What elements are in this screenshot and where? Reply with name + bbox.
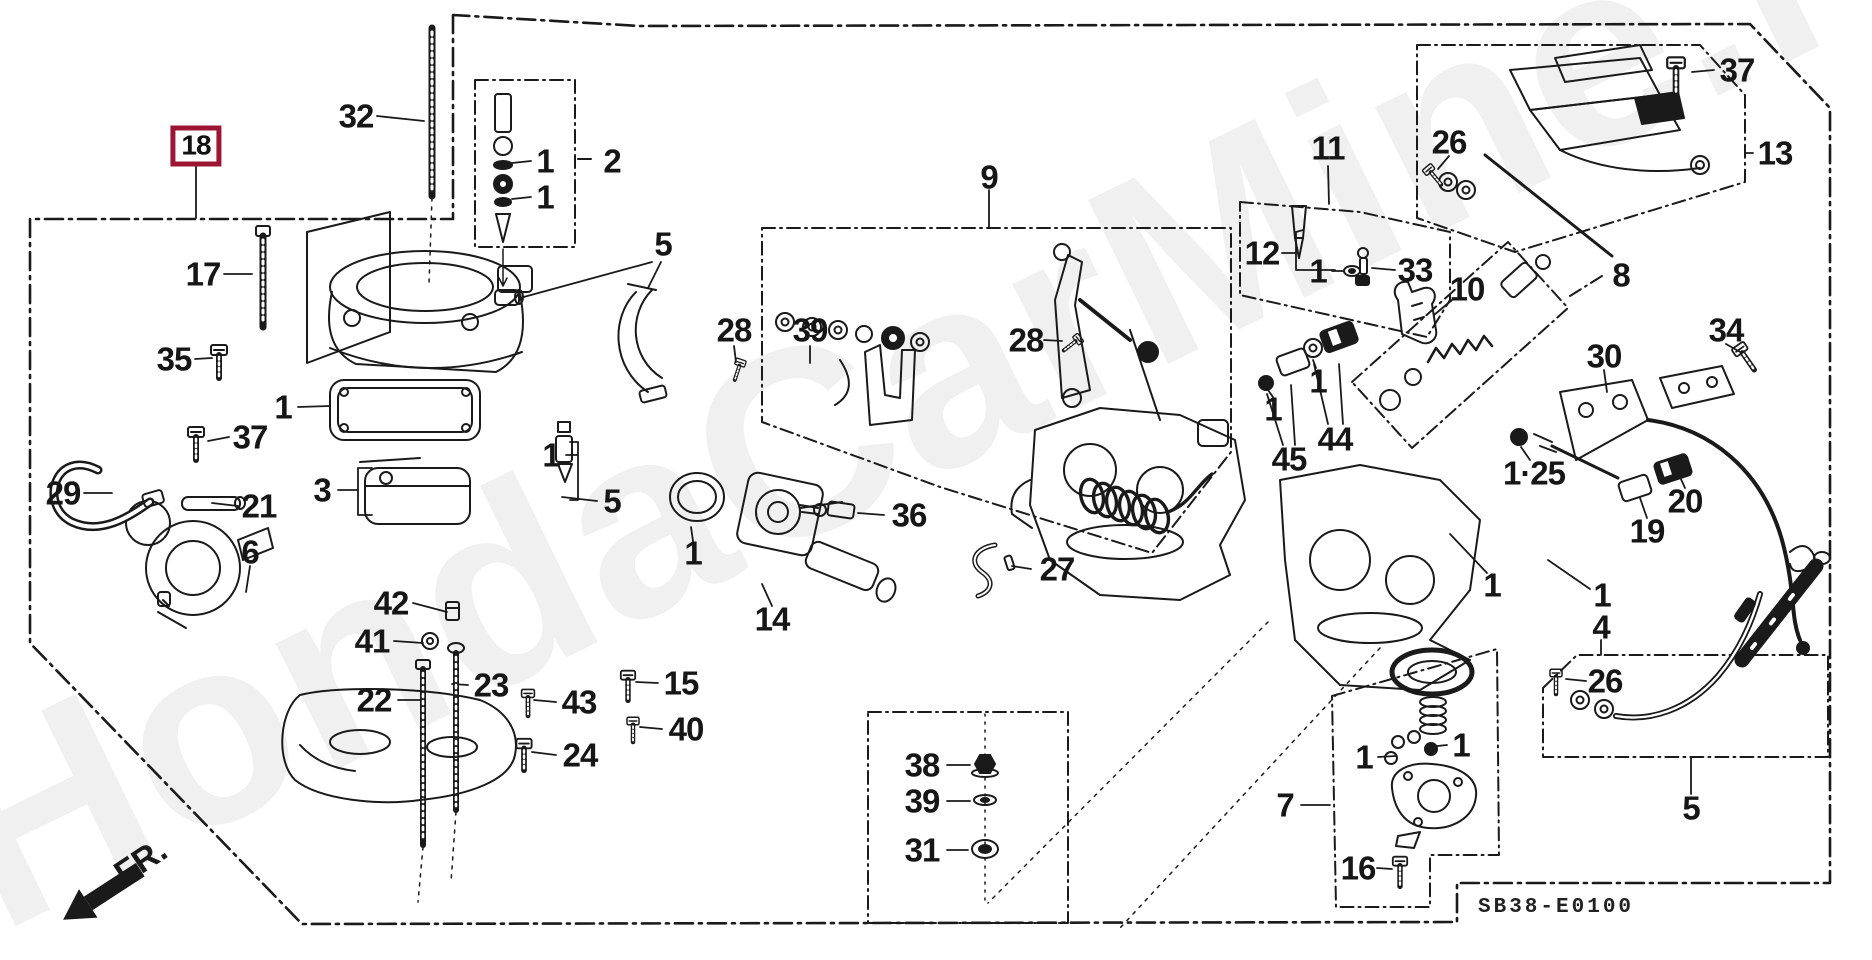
part-callout-39-59: 39 [905,785,940,818]
group-box-mount-38 [868,712,1068,923]
chamber-gasket-ring-5 [670,473,724,521]
part-callout-37-38: 37 [1720,54,1755,87]
part-callout-30-42: 30 [1587,340,1622,373]
part-callout-7-56: 7 [1276,789,1293,822]
nut-41-42 [422,602,459,649]
throttle-washers-and-lever-9 [776,244,1160,425]
part-callout-33-35: 33 [1398,254,1433,287]
part-callout-22-24: 22 [357,684,392,717]
part-callout-26-37: 26 [1432,126,1467,159]
jet-set-parts-2 [494,94,512,242]
part-callout-9-30: 9 [980,161,997,194]
part-callout-45-43: 45 [1272,443,1307,476]
part-callout-6-12: 6 [241,536,258,569]
solenoid-valve-14 [735,471,898,605]
part-callout-3-11: 3 [313,474,330,507]
part-callout-8-40: 8 [1612,259,1629,292]
part-callout-5-61: 5 [1682,792,1699,825]
part-callout-20-49: 20 [1668,485,1703,518]
part-callout-23-25: 23 [474,669,509,702]
part-callout-2-2: 2 [603,145,620,178]
part-callout-1-55: 1 [1452,729,1469,762]
part-callout-36-19: 36 [892,499,927,532]
group-box-jet-set-2 [475,80,575,247]
part-group-boxes [475,45,1828,923]
part-callout-1-16: 1 [542,439,559,472]
part-callout-1-46: 1 [1309,365,1326,398]
part-callout-26-53: 26 [1588,665,1623,698]
stud-bolt-17 [256,226,270,327]
part-callout-29-9: 29 [46,477,81,510]
part-callout-40-29: 40 [669,713,704,746]
part-callout-4-52: 4 [1592,611,1609,644]
carb-main-body-drawing [1011,408,1480,690]
part-callout-43-26: 43 [562,686,597,719]
part-callout-1-51: 1 [1593,579,1610,612]
part-callout-1-18: 1 [684,537,701,570]
part-callout-13-39: 13 [1758,137,1793,170]
part-callout-10-36: 10 [1450,273,1485,306]
part-callout-1-50: 1 [1483,569,1500,602]
choke-plate-assembly-13 [1439,45,1709,256]
part-callout-1-7: 1 [274,391,291,424]
part-callout-21-10: 21 [242,490,277,523]
carb-bottom-body-drawing [282,689,516,802]
part-callout-24-27: 24 [563,739,598,772]
part-callout-39-15: 39 [793,314,828,347]
part-callout-11-32: 11 [1312,132,1345,165]
needle-set-12 [1292,206,1369,285]
part-callout-27-21: 27 [1040,553,1075,586]
part-callout-19-48: 19 [1630,515,1665,548]
part-callout-17-5: 17 [186,258,221,291]
part-callout-1-54: 1 [1355,741,1372,774]
part-callout-1-45: 1 [1264,393,1281,426]
part-callout-1-4: 1 [536,181,553,214]
part-callout-14-20: 14 [755,603,790,636]
fr-direction-arrow: FR. [54,831,174,934]
part-callout-1-3: 1 [536,145,553,178]
part-callout-1-34: 1 [1309,255,1326,288]
hose-clip-27 [975,545,1015,596]
part-callout-41-23: 41 [355,625,390,658]
part-callout-35-6: 35 [157,343,192,376]
part-callout-31-60: 31 [905,834,940,867]
gasket-plate-drawing [330,380,480,440]
part-callout-44-44: 44 [1318,423,1353,456]
diagram-code: SB38-E0100 [1478,896,1634,919]
part-callout-15-28: 15 [664,667,699,700]
long-studs-22-23 [416,643,464,845]
part-callout-18-0: 18 [170,126,221,167]
part-callout-37-8: 37 [233,421,268,454]
part-callout-42-22: 42 [374,587,409,620]
part-callout-5-17: 5 [603,485,620,518]
air-horn-assembly-drawing [307,212,532,372]
part-callout-12-33: 12 [1245,237,1280,270]
parts-diagram-page: HondaCarMine.ru [0,0,1872,960]
part-callout-5-13: 5 [654,228,671,261]
float-drawing-3 [360,458,470,524]
part-callout-125-47: 1·25 [1503,457,1565,490]
part-callout-16-57: 16 [1341,852,1376,885]
part-callout-28-31: 28 [1009,324,1044,357]
part-callout-34-41: 34 [1709,314,1744,347]
part-callout-38-58: 38 [905,749,940,782]
part-callout-32-1: 32 [339,100,374,133]
part-callout-28-14: 28 [717,314,752,347]
